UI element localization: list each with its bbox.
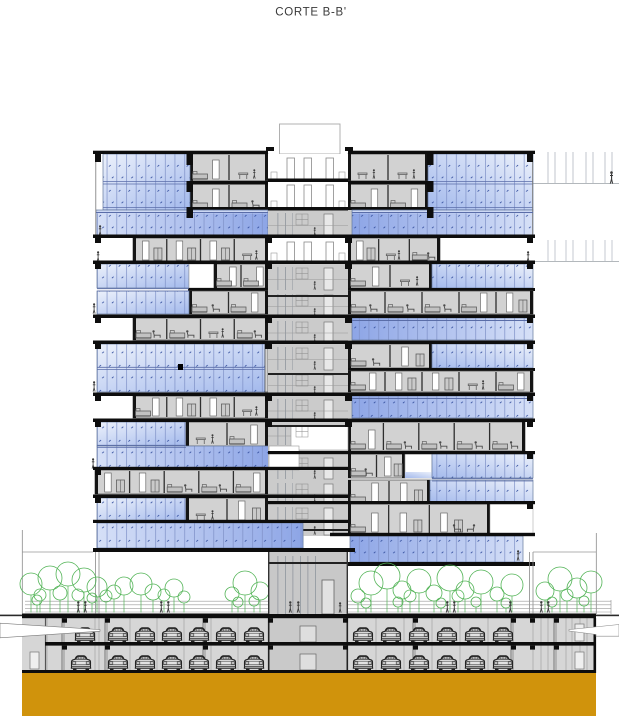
svg-text:CORTE B-B': CORTE B-B': [275, 7, 347, 19]
